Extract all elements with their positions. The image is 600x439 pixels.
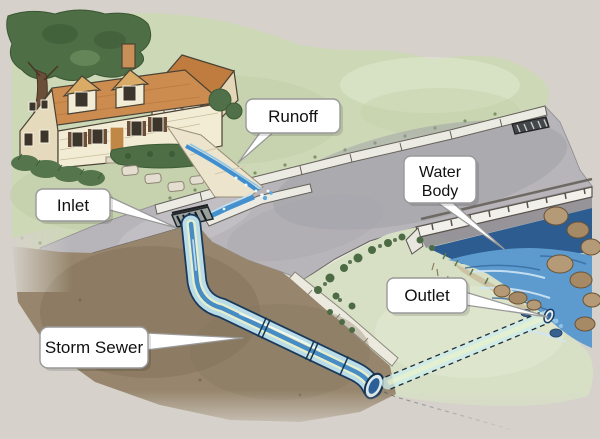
water-body-label-line1: Water	[419, 164, 462, 181]
storm-sewer-diagram: Runoff Inlet Water Body Outlet Storm Sew…	[0, 0, 600, 439]
chimney	[122, 44, 135, 68]
diagram-canvas: Runoff Inlet Water Body Outlet Storm Sew…	[0, 0, 600, 439]
storm-sewer-label: Storm Sewer	[45, 338, 144, 357]
inlet-label: Inlet	[57, 196, 89, 215]
runoff-label: Runoff	[268, 107, 318, 126]
bottom-fade	[0, 390, 600, 439]
water-body-label-line2: Body	[422, 183, 458, 200]
outlet-label: Outlet	[404, 286, 450, 305]
